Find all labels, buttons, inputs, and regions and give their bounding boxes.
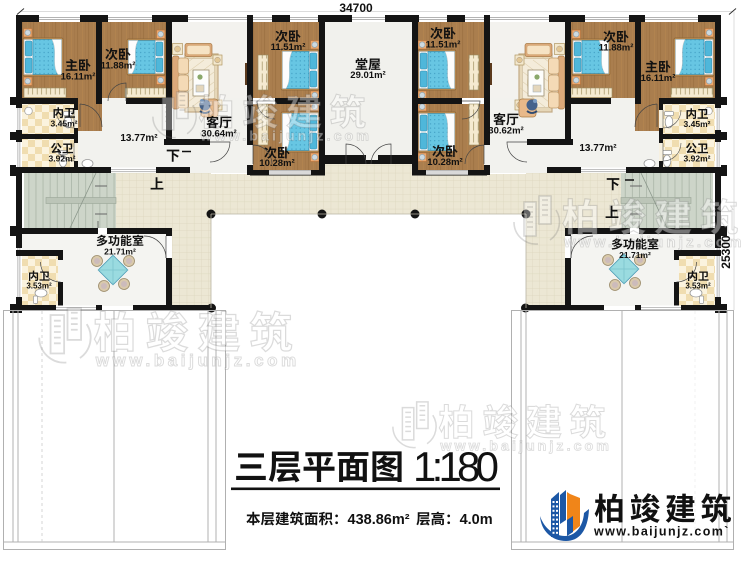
- svg-text:11.88m²: 11.88m²: [599, 43, 634, 54]
- svg-text:34700: 34700: [339, 1, 373, 15]
- svg-text:3.53m²: 3.53m²: [26, 282, 52, 291]
- svg-text:438.86m²: 438.86m²: [348, 512, 410, 528]
- svg-text:21.71m²: 21.71m²: [619, 250, 651, 260]
- svg-text:13.77m²: 13.77m²: [579, 143, 617, 154]
- svg-text:30.62m²: 30.62m²: [488, 126, 523, 137]
- svg-text:16.11m²: 16.11m²: [61, 72, 96, 83]
- svg-text:25300: 25300: [719, 235, 733, 269]
- svg-text:13.77m²: 13.77m²: [120, 133, 158, 144]
- svg-text:11.51m²: 11.51m²: [426, 40, 461, 51]
- svg-text:10.28m²: 10.28m²: [427, 157, 462, 168]
- svg-text:www.baijunjz.com: www.baijunjz.com: [95, 351, 300, 370]
- svg-text:16.11m²: 16.11m²: [641, 73, 676, 84]
- svg-text:3.45m²: 3.45m²: [684, 119, 711, 129]
- svg-text:30.64m²: 30.64m²: [201, 129, 236, 140]
- svg-text:3.92m²: 3.92m²: [684, 154, 711, 164]
- svg-text:10.28m²: 10.28m²: [259, 158, 294, 169]
- svg-text:29.01m²: 29.01m²: [350, 70, 385, 81]
- svg-text:3.45m²: 3.45m²: [51, 119, 78, 129]
- svg-text:3.92m²: 3.92m²: [49, 154, 76, 164]
- svg-text:4.0m: 4.0m: [460, 512, 493, 528]
- svg-text:11.51m²: 11.51m²: [271, 42, 306, 53]
- svg-text:www.baijunjz.com`: www.baijunjz.com`: [593, 525, 730, 539]
- svg-text:1:180: 1:180: [413, 443, 499, 490]
- svg-text:3.53m²: 3.53m²: [685, 282, 711, 291]
- svg-text:11.88m²: 11.88m²: [101, 61, 136, 72]
- svg-text:21.71m²: 21.71m²: [104, 247, 136, 257]
